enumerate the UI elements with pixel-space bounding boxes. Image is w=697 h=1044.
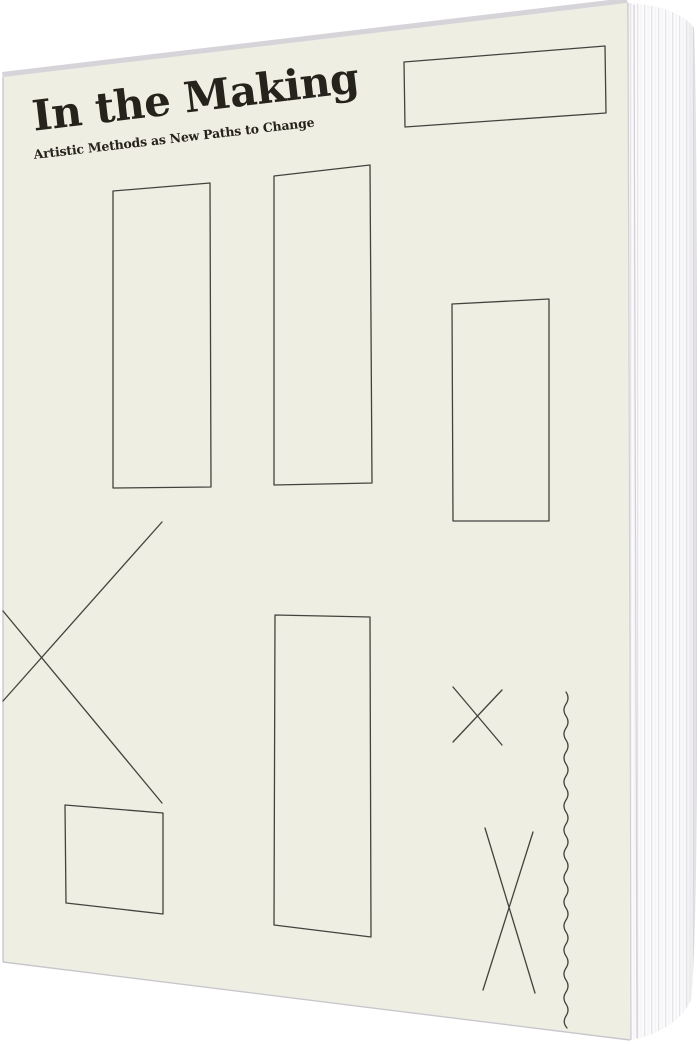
book-render xyxy=(0,0,697,1044)
page-edges xyxy=(627,3,697,1040)
product-photo: In the Making Artistic Methods as New Pa… xyxy=(0,0,697,1044)
